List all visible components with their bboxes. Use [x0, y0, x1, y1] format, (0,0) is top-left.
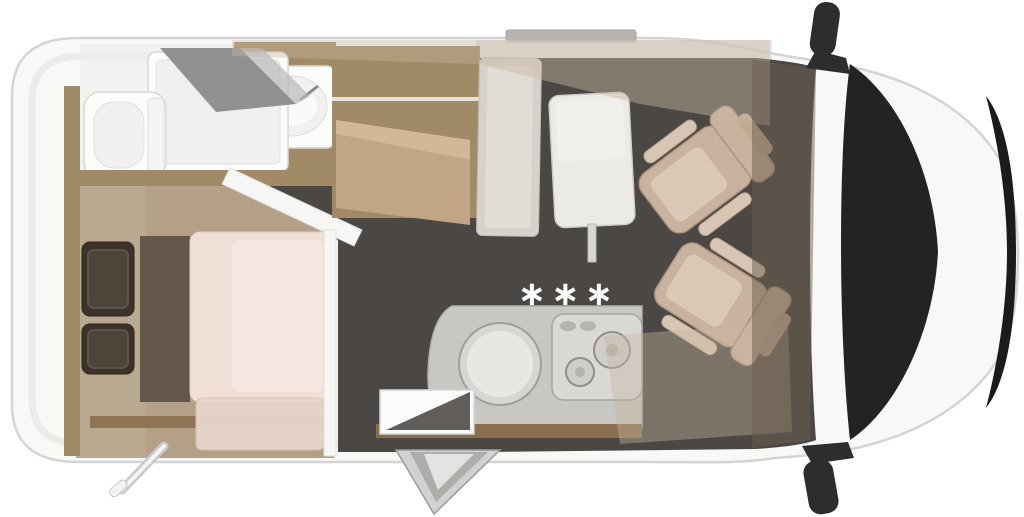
- wardrobe: [64, 86, 80, 456]
- heater-marker: ∗∗∗: [518, 274, 618, 314]
- hob-knob-1: [560, 321, 576, 331]
- pillow-2: [82, 324, 134, 374]
- bottom-wing-mirror: [802, 442, 854, 516]
- toilet-tank: [148, 98, 164, 172]
- bed-runner: [140, 236, 190, 402]
- table-leg: [588, 224, 596, 262]
- kitchen-sink: [467, 331, 533, 397]
- bathroom-wall-wood: [66, 170, 336, 186]
- hob-knob-2: [580, 321, 596, 331]
- dinette-shelf-line: [332, 97, 480, 101]
- dashboard: [752, 60, 816, 448]
- duvet: [232, 240, 324, 392]
- bedroom-wall: [324, 230, 336, 456]
- entrance-steps: [396, 450, 500, 514]
- seat-divider-face: [485, 66, 534, 229]
- top-wing-mirror: [806, 0, 850, 74]
- bed: [82, 230, 336, 456]
- crank-grip: [108, 478, 129, 498]
- bed-bench: [196, 398, 324, 450]
- table-highlight: [555, 98, 626, 161]
- pillow-1: [82, 242, 134, 316]
- floorplan-canvas: ∗∗∗: [0, 0, 1024, 517]
- toilet-seat: [94, 102, 144, 168]
- floorplan-image: ∗∗∗: [0, 0, 1024, 517]
